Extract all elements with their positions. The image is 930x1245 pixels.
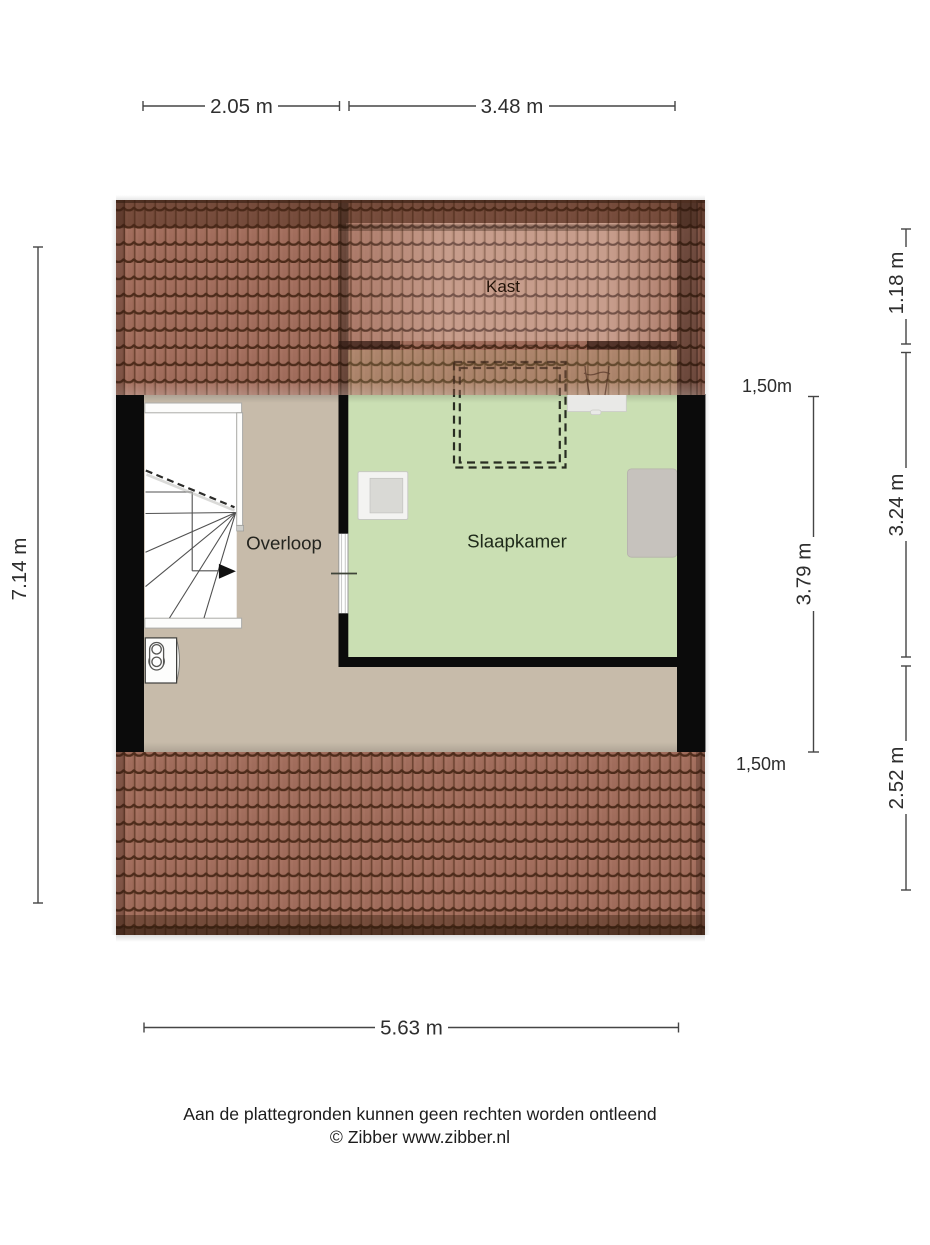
svg-text:1,50m: 1,50m [736,754,786,774]
svg-text:Overloop: Overloop [246,533,322,554]
svg-text:© Zibber www.zibber.nl: © Zibber www.zibber.nl [330,1127,510,1147]
svg-text:2.52 m: 2.52 m [885,747,908,810]
svg-text:Slaapkamer: Slaapkamer [467,531,567,552]
svg-text:3.24 m: 3.24 m [885,474,908,537]
svg-text:Kast: Kast [486,277,520,296]
svg-text:Aan de plattegronden kunnen ge: Aan de plattegronden kunnen geen rechten… [183,1104,656,1124]
svg-text:7.14 m: 7.14 m [8,538,31,601]
svg-text:3.79 m: 3.79 m [793,543,816,606]
svg-text:1.18 m: 1.18 m [885,252,908,315]
svg-text:5.63 m: 5.63 m [380,1017,443,1040]
svg-text:3.48 m: 3.48 m [481,95,544,118]
svg-text:1,50m: 1,50m [742,376,792,396]
svg-text:2.05 m: 2.05 m [210,95,273,118]
